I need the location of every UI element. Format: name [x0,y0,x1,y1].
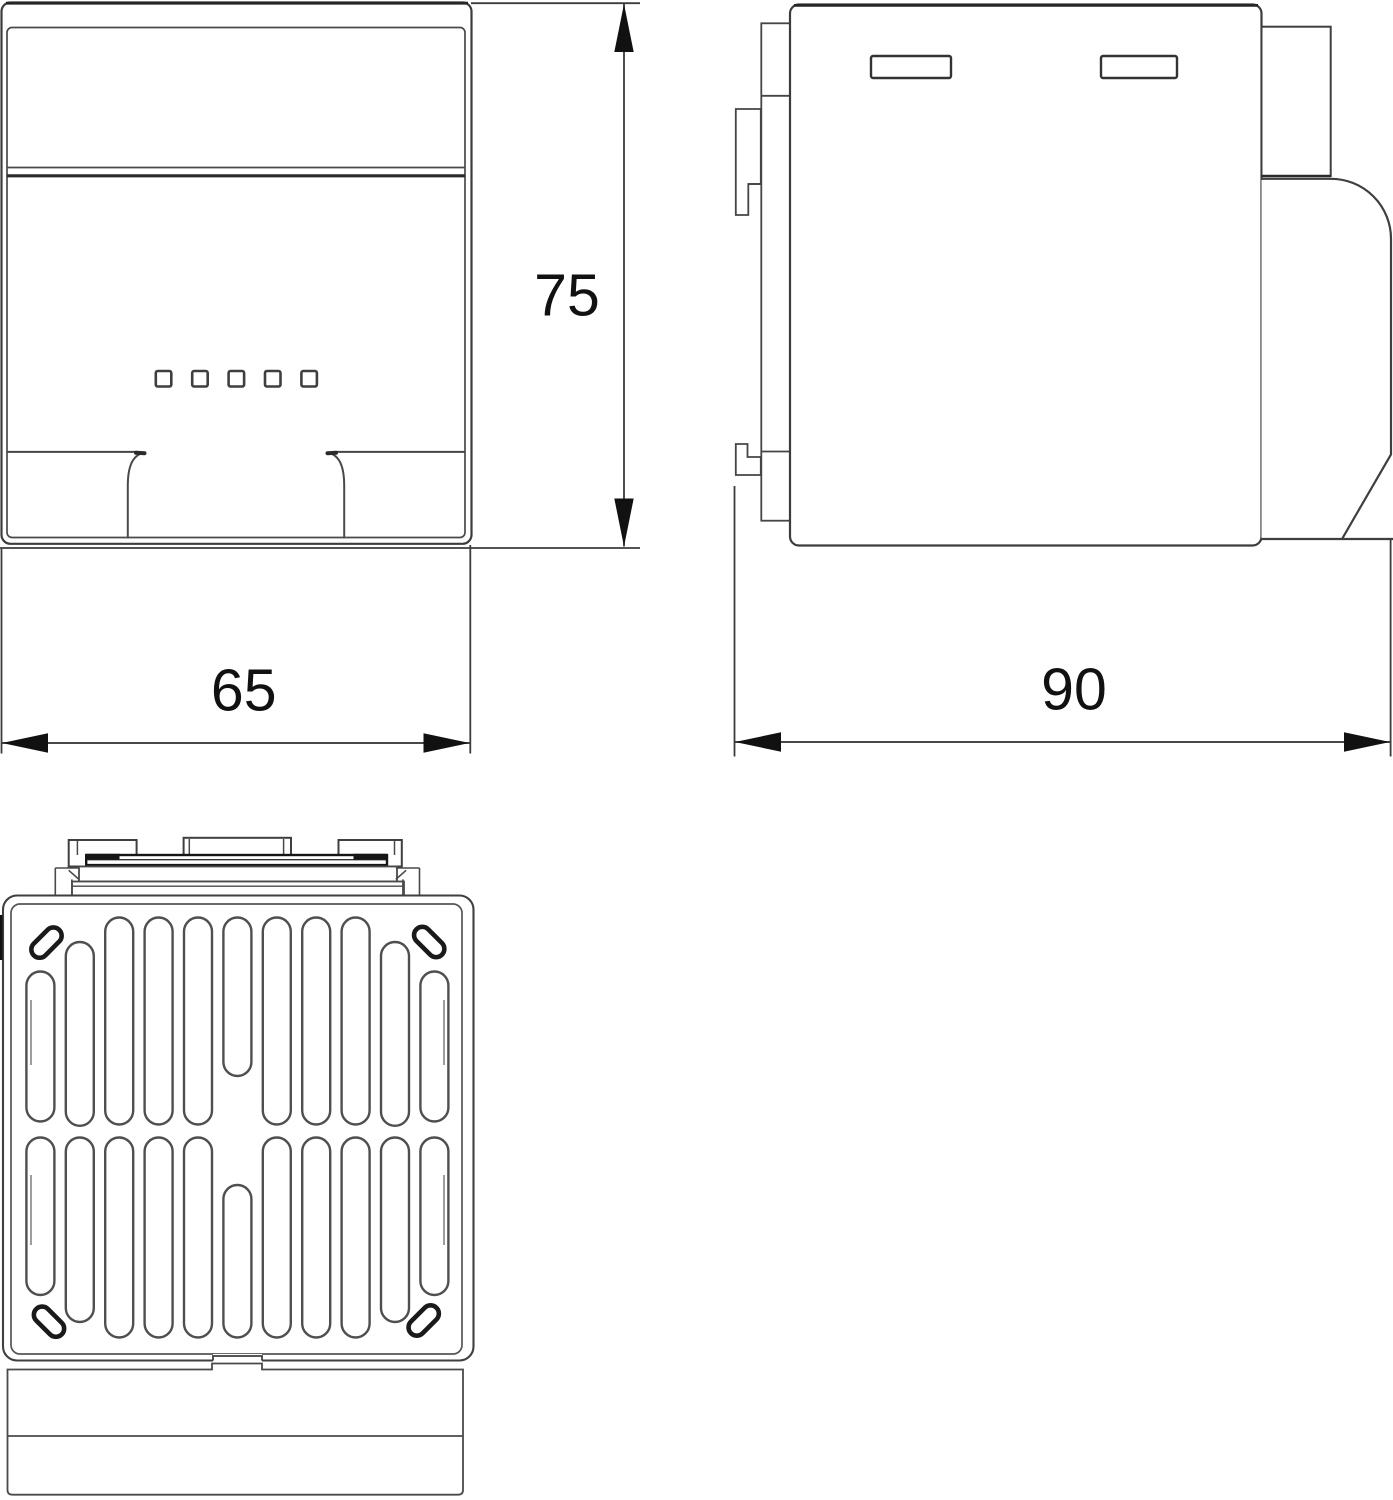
svg-text:75: 75 [534,263,600,329]
svg-text:90: 90 [1041,657,1107,723]
svg-text:65: 65 [211,658,277,724]
